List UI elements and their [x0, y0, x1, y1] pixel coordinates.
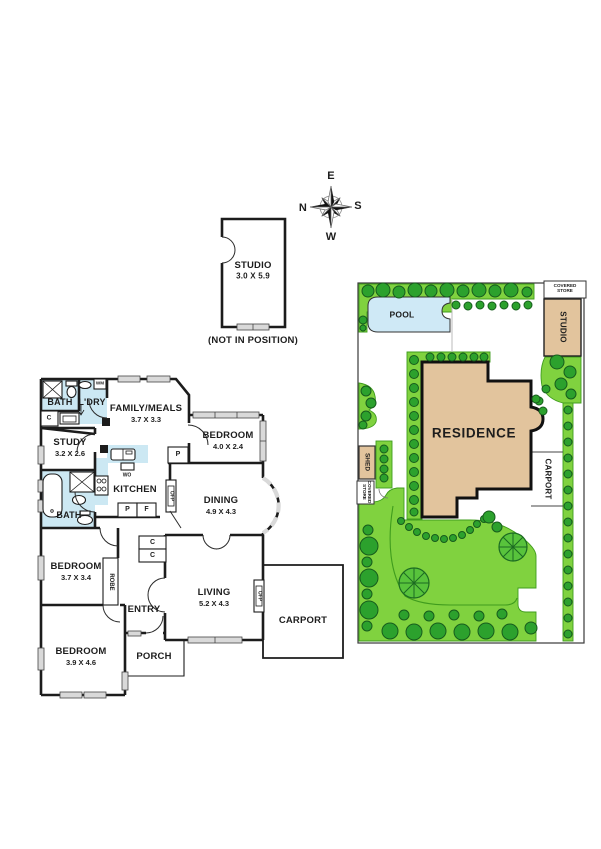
shower-icon [43, 381, 62, 398]
site-residence-label: RESIDENCE [432, 427, 516, 442]
laundry-sink-icon [79, 382, 91, 389]
room-bath2-label: BATH [56, 511, 81, 521]
room-bedroom3-label: BEDROOM [55, 647, 106, 657]
room-dining-label: DINING [204, 496, 238, 506]
fridge-label: F [144, 506, 148, 514]
room-dining-dims: 4.9 X 4.3 [206, 508, 236, 516]
cupboard-label: C [150, 552, 155, 560]
cupboard-label: C [47, 414, 52, 421]
pantry-label: P [176, 451, 181, 459]
fireplace-label: OFP [256, 591, 261, 601]
site-carport-label: CARPORT [543, 459, 552, 500]
studio-dims-label: 3.0 X 5.9 [236, 273, 270, 282]
compass-north-label: N [299, 203, 307, 215]
room-bedroom3-dims: 3.9 X 4.6 [66, 659, 96, 667]
robe-label: ROBE [107, 573, 113, 590]
compass-rose-icon [310, 186, 352, 228]
toilet-icon [66, 381, 77, 398]
not-in-position-label: (NOT IN POSITION) [208, 336, 298, 346]
kitchen-sink-icon [111, 449, 135, 460]
site-studio-label: STUDIO [558, 311, 567, 342]
room-living-label: LIVING [198, 588, 231, 598]
room-family-dims: 3.7 X 3.3 [131, 416, 161, 424]
plan-graphics [0, 0, 601, 849]
room-bath1-label: BATH [47, 398, 72, 408]
room-family-label: FAMILY/MEALS [110, 404, 182, 414]
room-porch-label: PORCH [136, 652, 171, 662]
compass-east-label: E [327, 171, 335, 183]
room-bedroom1-label: BEDROOM [202, 431, 253, 441]
fireplace-label: OFP [168, 491, 173, 501]
wall-oven-label: WO [123, 473, 132, 478]
room-laundry-label: L'DRY [78, 398, 105, 408]
room-carport-label: CARPORT [279, 616, 327, 626]
pantry-label: P [125, 506, 130, 514]
room-kitchen-label: KITCHEN [113, 485, 157, 495]
room-bedroom1-dims: 4.0 X 2.4 [213, 443, 243, 451]
site-covered-store-label: COVERED STORE [361, 480, 371, 504]
compass-west-label: W [326, 232, 337, 244]
floorplan-page: E S W N STUDIO 3.0 X 5.9 (NOT IN POSITIO… [0, 0, 601, 849]
compass-south-label: S [354, 201, 362, 213]
room-bedroom2-dims: 3.7 X 3.4 [61, 574, 91, 582]
studio-label: STUDIO [234, 261, 271, 271]
room-entry-label: ENTRY [128, 605, 161, 615]
site-pool-label: POOL [390, 310, 415, 319]
tree-icon [399, 568, 429, 598]
carport-outline [263, 565, 343, 658]
room-bedroom2-label: BEDROOM [50, 562, 101, 572]
room-study-label: STUDY [53, 438, 86, 448]
oven-icon [121, 463, 134, 470]
shower-icon [70, 472, 94, 492]
room-study-dims: 3.2 X 2.6 [55, 450, 85, 458]
room-living-dims: 5.2 X 4.3 [199, 600, 229, 608]
site-covered-store-label: COVERED STORE [550, 284, 580, 294]
site-shed-label: SHED [363, 453, 370, 471]
basin-icon [73, 496, 86, 505]
cupboard-label: C [150, 539, 155, 547]
washing-machine-label: WM [96, 382, 104, 387]
cooktop-icon [95, 476, 108, 495]
tree-icon [499, 533, 527, 561]
